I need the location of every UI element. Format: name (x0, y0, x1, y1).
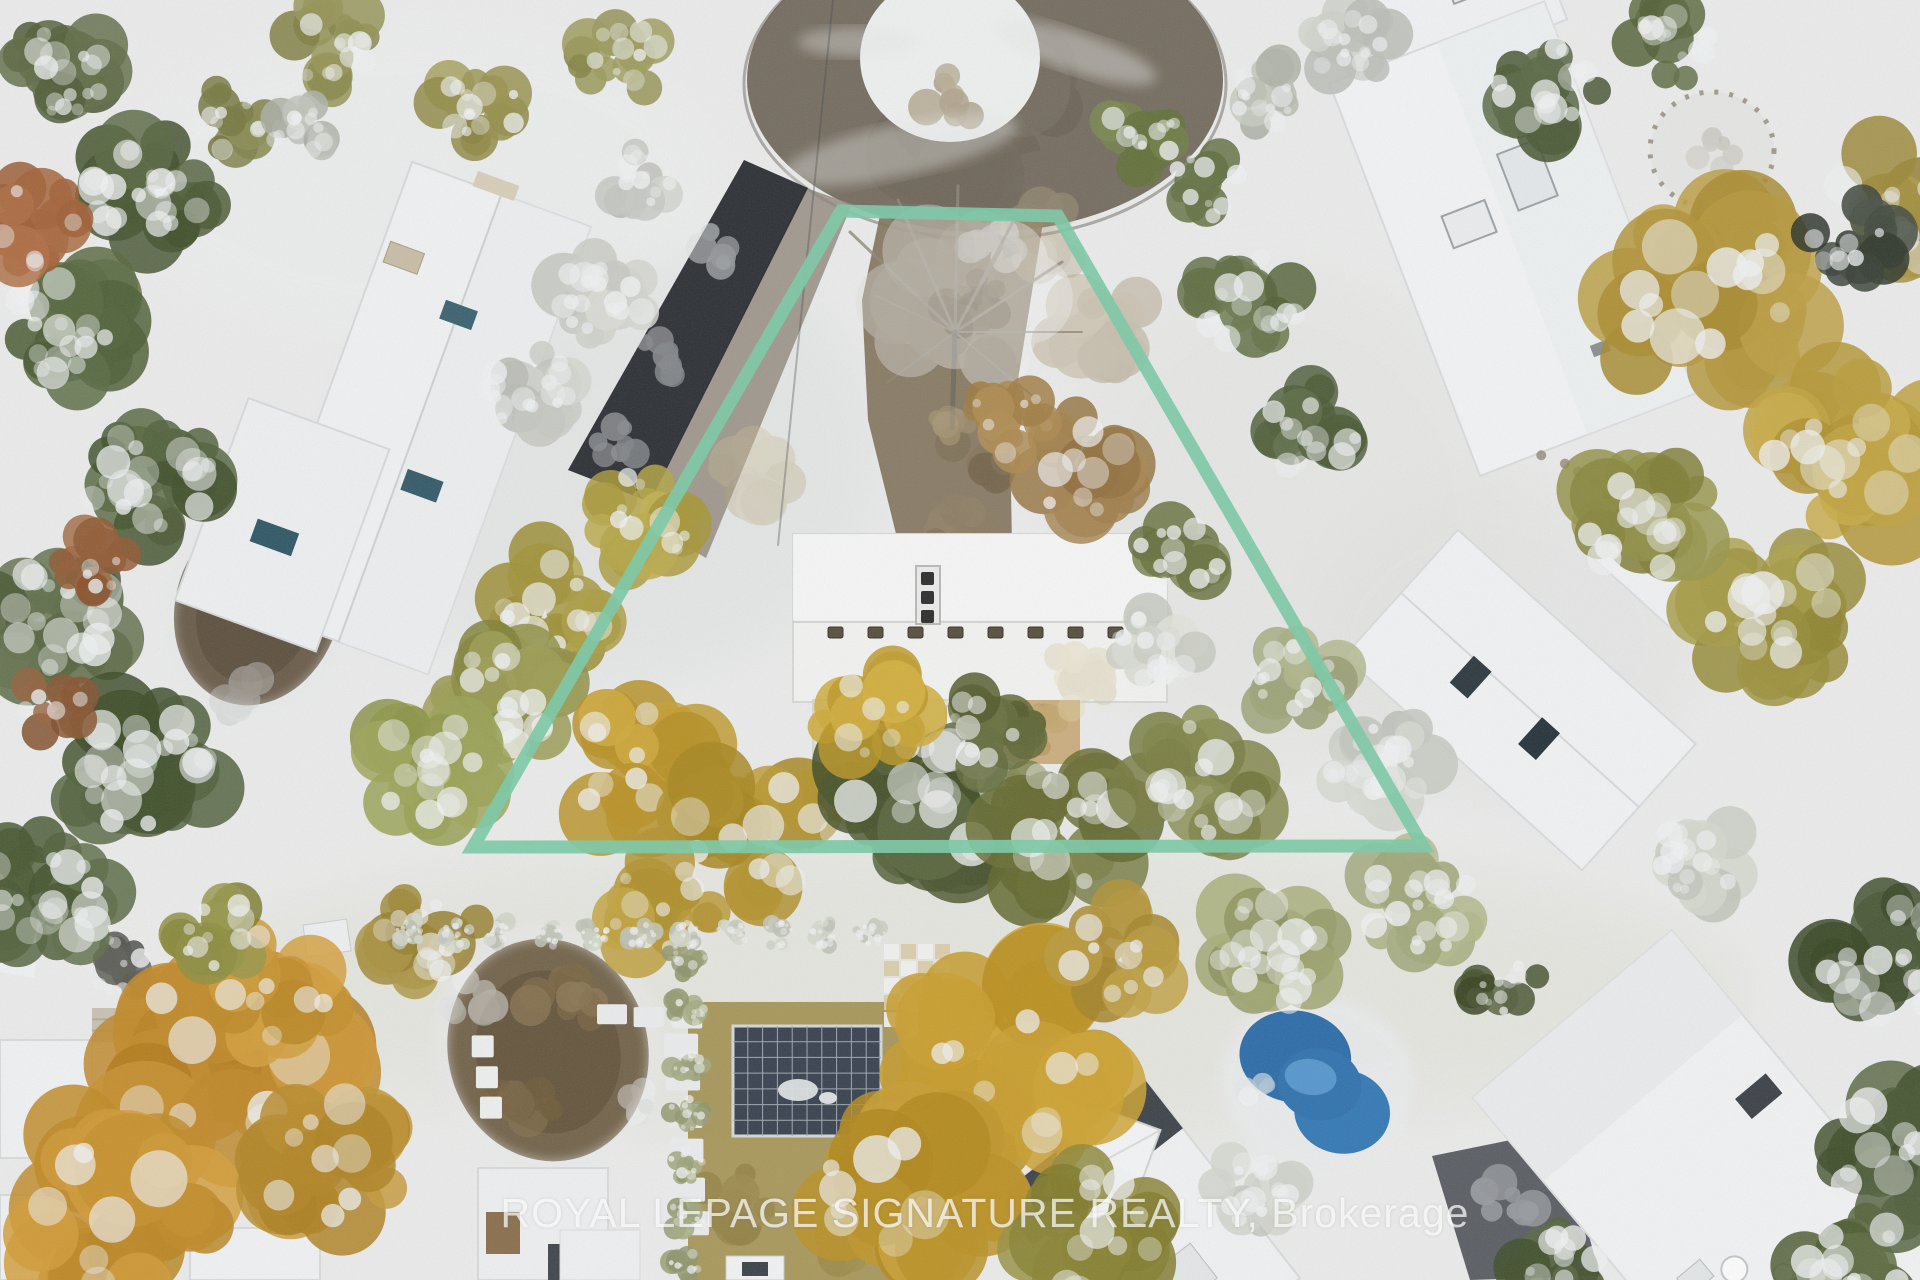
brokerage-watermark: ROYAL LEPAGE SIGNATURE REALTY, Brokerage (501, 1190, 1470, 1237)
scene-svg (0, 0, 1920, 1280)
photo-grain (0, 0, 1920, 1280)
aerial-photo: ROYAL LEPAGE SIGNATURE REALTY, Brokerage (0, 0, 1920, 1280)
